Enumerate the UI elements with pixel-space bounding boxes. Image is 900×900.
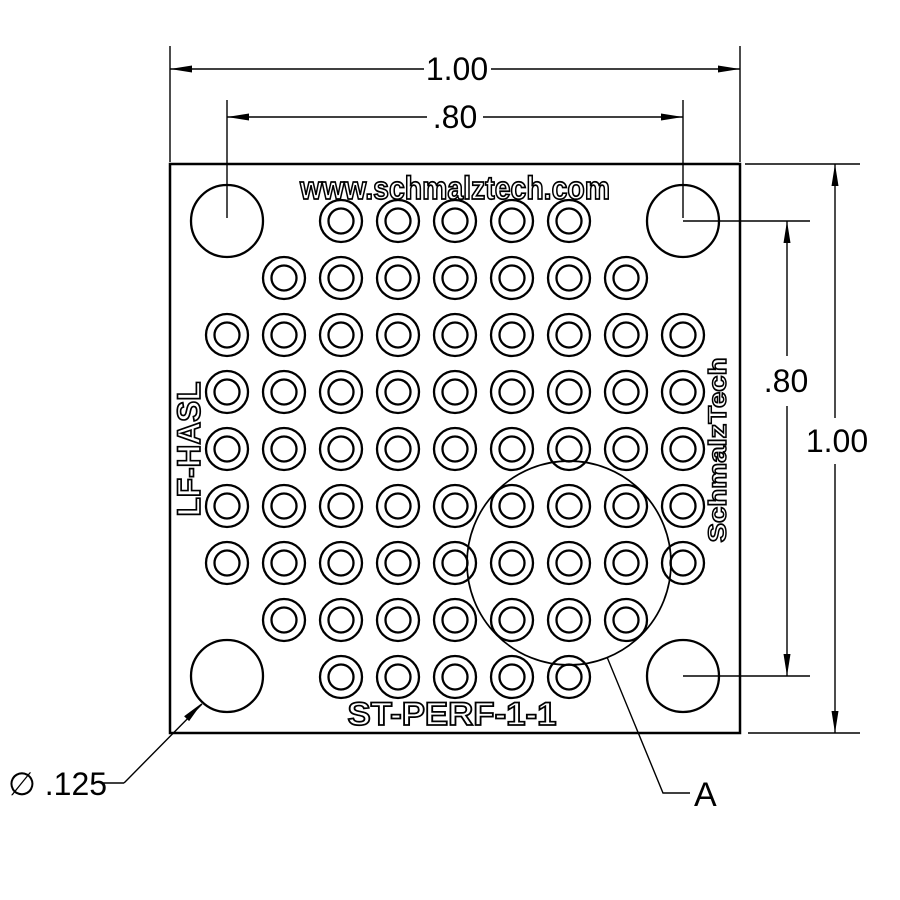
arrow-up-icon	[784, 221, 791, 243]
pad-inner	[272, 494, 297, 519]
pad-inner	[272, 266, 297, 291]
arrow-left-icon	[170, 66, 192, 73]
pad-inner	[329, 266, 354, 291]
pad-grid	[206, 200, 704, 698]
pad-inner	[386, 551, 411, 576]
pad-inner	[443, 323, 468, 348]
pad-inner	[671, 380, 696, 405]
pad-inner	[272, 551, 297, 576]
board	[170, 164, 740, 733]
pad-inner	[215, 494, 240, 519]
pad-inner	[557, 665, 582, 690]
pad-inner	[557, 209, 582, 234]
brand-label: SchmalzTech	[704, 358, 732, 543]
pad-inner	[329, 494, 354, 519]
website-label: www.schmalztech.com	[299, 170, 610, 206]
arrow-down-icon	[832, 711, 839, 733]
pad-inner	[614, 380, 639, 405]
pad-inner	[614, 494, 639, 519]
pad-inner	[329, 380, 354, 405]
pad-inner	[386, 266, 411, 291]
arrow-left-icon	[227, 114, 249, 121]
part-number-label: ST-PERF-1-1	[348, 696, 557, 732]
pad-inner	[272, 608, 297, 633]
arrow-right-icon	[718, 66, 740, 73]
finish-label: LF-HASL	[171, 382, 207, 517]
pad-inner	[443, 209, 468, 234]
pad-inner	[386, 323, 411, 348]
pad-inner	[557, 266, 582, 291]
pad-inner	[500, 266, 525, 291]
pad-inner	[614, 266, 639, 291]
pad-inner	[329, 437, 354, 462]
dim-right-pads-value: .80	[764, 363, 808, 399]
pad-inner	[443, 608, 468, 633]
dim-top-pads-value: .80	[433, 99, 477, 135]
pad-inner	[386, 209, 411, 234]
pad-inner	[272, 437, 297, 462]
pad-inner	[671, 437, 696, 462]
pad-inner	[500, 380, 525, 405]
pad-inner	[500, 323, 525, 348]
pad-inner	[614, 437, 639, 462]
pad-inner	[443, 665, 468, 690]
dim-top-total-value: 1.00	[426, 51, 488, 87]
pad-inner	[329, 323, 354, 348]
pad-inner	[557, 551, 582, 576]
drawing-page: www.schmalztech.com ST-PERF-1-1 LF-HASL …	[0, 0, 900, 900]
dim-right-total: 1.00	[745, 164, 868, 733]
dim-right-total-value: 1.00	[806, 423, 868, 459]
pad-inner	[272, 323, 297, 348]
pad-inner	[443, 494, 468, 519]
pad-inner	[443, 266, 468, 291]
pad-inner	[443, 437, 468, 462]
pad-inner	[614, 323, 639, 348]
pad-inner	[614, 608, 639, 633]
mounting-hole	[191, 640, 263, 712]
pad-inner	[557, 437, 582, 462]
pad-inner	[557, 494, 582, 519]
pad-inner	[443, 380, 468, 405]
pad-inner	[500, 209, 525, 234]
pad-inner	[386, 665, 411, 690]
pad-inner	[215, 323, 240, 348]
pad-inner	[215, 437, 240, 462]
pad-inner	[329, 665, 354, 690]
pad-inner	[386, 608, 411, 633]
pad-inner	[557, 380, 582, 405]
pad-inner	[215, 551, 240, 576]
pad-inner	[215, 380, 240, 405]
pad-inner	[614, 551, 639, 576]
pad-inner	[671, 494, 696, 519]
pad-inner	[500, 665, 525, 690]
pad-inner	[443, 551, 468, 576]
pad-inner	[386, 380, 411, 405]
pad-inner	[557, 323, 582, 348]
pad-inner	[329, 209, 354, 234]
pad-inner	[500, 551, 525, 576]
arrow-right-icon	[661, 114, 683, 121]
pad-inner	[671, 323, 696, 348]
hole-callout-value: ∅ .125	[8, 766, 107, 802]
pad-inner	[329, 608, 354, 633]
pad-inner	[386, 437, 411, 462]
pad-inner	[500, 437, 525, 462]
arrow-down-icon	[784, 654, 791, 676]
pad-inner	[386, 494, 411, 519]
pad-inner	[557, 608, 582, 633]
pad-inner	[500, 494, 525, 519]
pad-inner	[272, 380, 297, 405]
pad-inner	[671, 551, 696, 576]
detail-label: A	[694, 776, 717, 814]
technical-drawing: www.schmalztech.com ST-PERF-1-1 LF-HASL …	[0, 0, 900, 900]
arrow-up-icon	[832, 164, 839, 186]
pad-inner	[500, 608, 525, 633]
pad-inner	[329, 551, 354, 576]
